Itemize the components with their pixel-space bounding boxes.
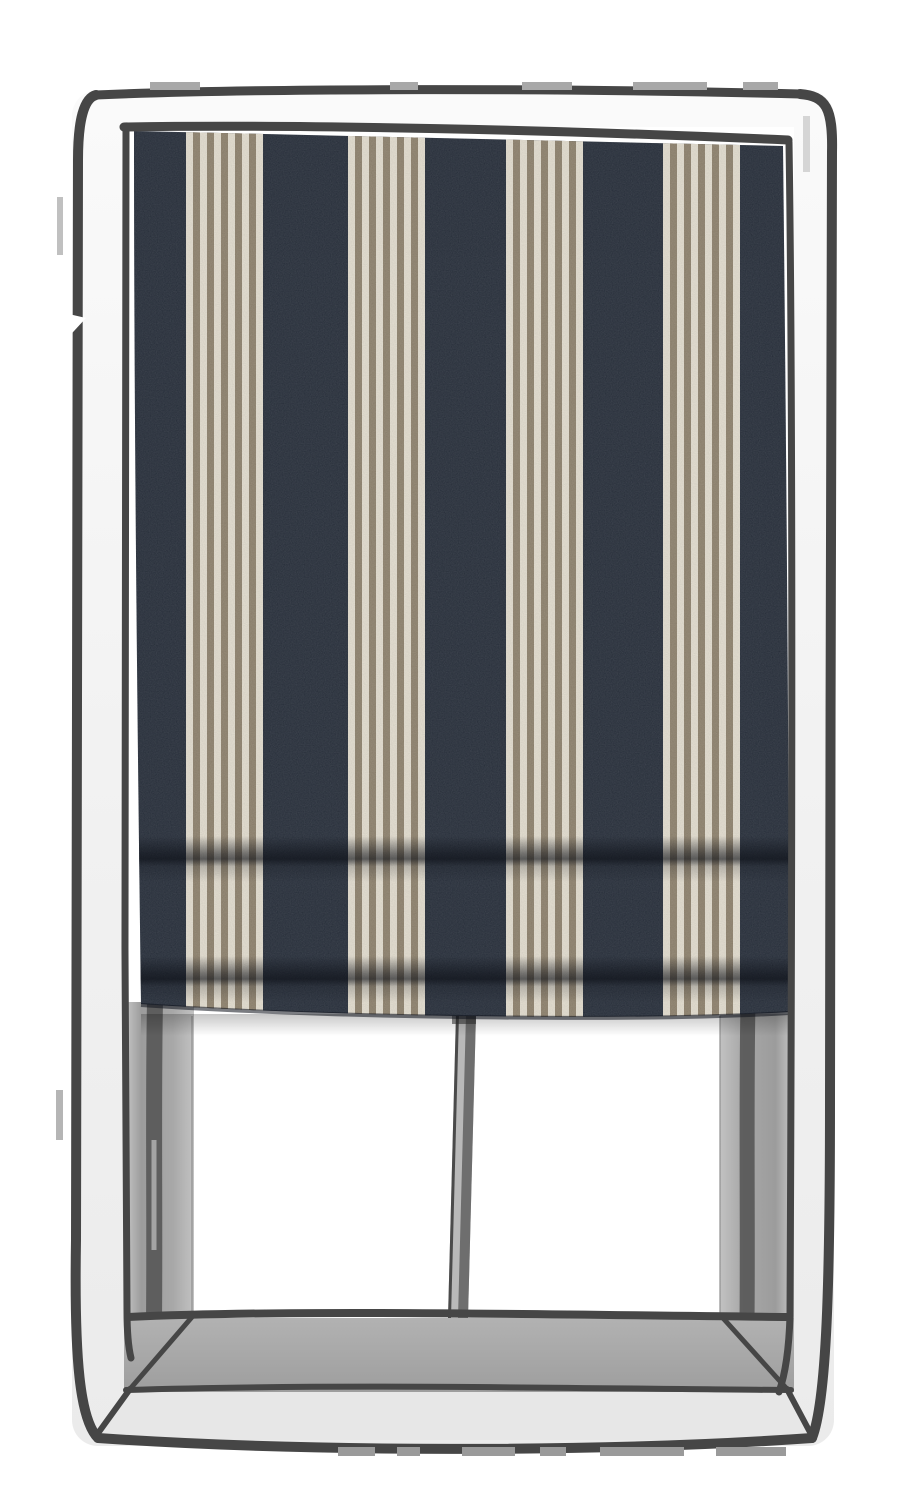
sill-bottom-line (126, 1387, 791, 1390)
window-sketch-svg (0, 0, 900, 1500)
bottom-sketch-dashes (338, 1447, 786, 1456)
sketch-dash (338, 1447, 375, 1456)
roman-shade-window-illustration (0, 0, 900, 1500)
sketch-dash (633, 82, 707, 90)
sketch-dash (462, 1447, 515, 1456)
sketch-dash (397, 1447, 420, 1456)
roman-fold-shadow (130, 836, 792, 882)
sketch-dash (600, 1447, 684, 1456)
sill-top-line (128, 1313, 789, 1317)
roman-fold-shadow (130, 956, 792, 1002)
roman-shade (130, 120, 792, 1030)
sketch-dash (743, 82, 778, 90)
sketch-dash (150, 82, 200, 90)
sketch-dash (390, 82, 418, 90)
product-image-stage (0, 0, 900, 1500)
fabric-texture (134, 120, 790, 1030)
sketch-dash (522, 82, 572, 90)
sketch-dash (716, 1447, 786, 1456)
sketch-dash (540, 1447, 566, 1456)
window-sill (124, 1318, 794, 1392)
right-jamb (719, 1002, 794, 1320)
left-jamb (124, 1002, 194, 1320)
